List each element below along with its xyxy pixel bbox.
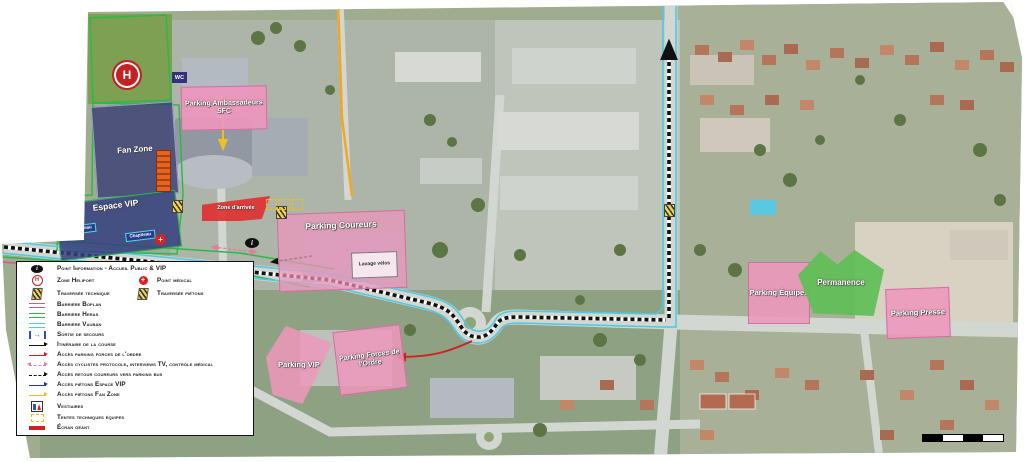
fan-zone-access-arrow	[22, 395, 52, 396]
legend-row: Tentes techniques équipes	[19, 414, 251, 423]
legend-label: Accès retour coureurs vers parking bus	[57, 371, 162, 379]
heliport-icon: H	[112, 60, 142, 90]
gate-icon	[134, 288, 152, 300]
technical-crossing-line	[338, 0, 352, 196]
cyclists-access-arrow	[22, 365, 52, 366]
medical-cross-icon	[155, 234, 166, 245]
legend-row: Point Information - Accueil Public & VIP	[19, 265, 251, 274]
gate-icon	[172, 200, 183, 213]
legend-label: Écran géant	[57, 424, 90, 432]
gate-icon	[22, 288, 52, 300]
legend-label: Accès piétons Espace VIP	[57, 381, 126, 389]
legend-row: Vestiaires	[19, 401, 251, 412]
legend-row: Accès piétons Fan Zone	[19, 391, 251, 400]
map-scale-bar	[922, 434, 1004, 442]
legend-label: Sortie de secours	[57, 331, 104, 339]
medical-cross-icon	[134, 276, 152, 285]
legend-label: Accès cyclistes protocole, interviews TV…	[57, 361, 213, 369]
legend: Point Information - Accueil Public & VIP…	[16, 261, 254, 436]
legend-label: Barrière Heras	[57, 311, 98, 319]
legend-row: Accès parking forces de l'ordre	[19, 351, 251, 360]
wc-box: WC	[172, 72, 187, 83]
legend-label: Barrière Vauban	[57, 321, 101, 329]
legend-label: Point Information - Accueil Public & VIP	[57, 265, 166, 273]
giant-screen-marker	[156, 150, 171, 192]
parking-forces-ordre-label: Parking Forces de l'Ordre	[336, 348, 403, 371]
riders-return-arrow	[22, 375, 52, 376]
zone-parking-equipes: Parking Équipes	[748, 262, 810, 324]
parking-ambassadeurs-label: Parking Ambassadeurs SFC	[182, 100, 266, 117]
team-tent-box	[292, 199, 303, 210]
access-police-parking-arrow	[398, 341, 472, 357]
legend-label: Vestiaires	[57, 403, 83, 411]
legend-row: Barrière Boplan	[19, 301, 251, 310]
zone-parking-coureurs: Parking Coureurs Lavage vélos	[277, 210, 408, 292]
parking-vip-label: Parking VIP	[278, 361, 320, 369]
course-route-arrow	[22, 345, 52, 346]
zone-parking-presse: Parking Presse	[885, 287, 951, 339]
team-tent-box	[266, 199, 277, 210]
barrier-boplan-swatch	[22, 303, 52, 308]
heliport-icon	[22, 275, 52, 286]
legend-label: Traversée piétons	[157, 290, 204, 298]
lavage-velos-box: Lavage vélos	[351, 251, 398, 279]
legend-label: Point médical	[157, 277, 192, 285]
legend-row: Traversée technique Traversée piétons	[19, 288, 251, 300]
info-point-icon	[22, 265, 52, 273]
giant-screen-swatch	[22, 426, 52, 430]
legend-row: Écran géant	[19, 424, 251, 433]
zone-arrivee-label: Zone d'arrivée	[217, 205, 254, 211]
gate-icon	[664, 204, 675, 217]
legend-label: Zone Héliport	[57, 277, 129, 285]
zone-parking-ambassadeurs: Parking Ambassadeurs SFC	[181, 85, 268, 130]
emergency-exit-icon	[22, 331, 52, 339]
legend-row: Accès retour coureurs vers parking bus	[19, 371, 251, 380]
legend-label: Barrière Boplan	[57, 301, 101, 309]
police-access-arrow	[22, 355, 52, 356]
team-tent-box	[279, 199, 290, 210]
legend-row: Accès cyclistes protocole, interviews TV…	[19, 361, 251, 370]
legend-row: Accès piétons Espace VIP	[19, 381, 251, 390]
legend-label: Tentes techniques équipes	[57, 414, 124, 422]
parking-presse-label: Parking Presse	[891, 308, 945, 318]
legend-label: Accès piétons Fan Zone	[57, 391, 120, 399]
site-plan-canvas: Fan Zone Espace VIP Chapiteau Chapiteau …	[0, 0, 1024, 462]
legend-row: Zone Héliport Point médical	[19, 275, 251, 286]
legend-row: Barrière Vauban	[19, 321, 251, 330]
barrier-vauban-swatch	[22, 323, 52, 328]
espace-vip-label: Espace VIP	[92, 198, 139, 213]
legend-label: Accès parking forces de l'ordre	[57, 351, 142, 359]
parking-coureurs-label: Parking Coureurs	[305, 220, 377, 232]
barrier-heras-swatch	[22, 313, 52, 318]
legend-row: Barrière Heras	[19, 311, 251, 320]
team-tent-icon	[22, 414, 52, 422]
restrooms-icon	[22, 401, 52, 412]
legend-label: Itinéraire de la course	[57, 341, 116, 349]
permanence-label: Permanence	[817, 279, 865, 288]
legend-row: Sortie de secours	[19, 331, 251, 340]
fan-zone-label: Fan Zone	[117, 144, 153, 155]
legend-row: Itinéraire de la course	[19, 341, 251, 350]
info-point-icon: i	[245, 238, 259, 248]
chapiteau-box: Chapiteau	[125, 230, 156, 242]
chapiteau-box: Chapiteau	[66, 223, 97, 235]
vip-access-arrow	[22, 385, 52, 386]
parking-equipes-label: Parking Équipes	[750, 289, 809, 297]
legend-label: Traversée technique	[57, 290, 129, 298]
zone-parking-forces-ordre: Parking Forces de l'Ordre	[332, 324, 407, 396]
